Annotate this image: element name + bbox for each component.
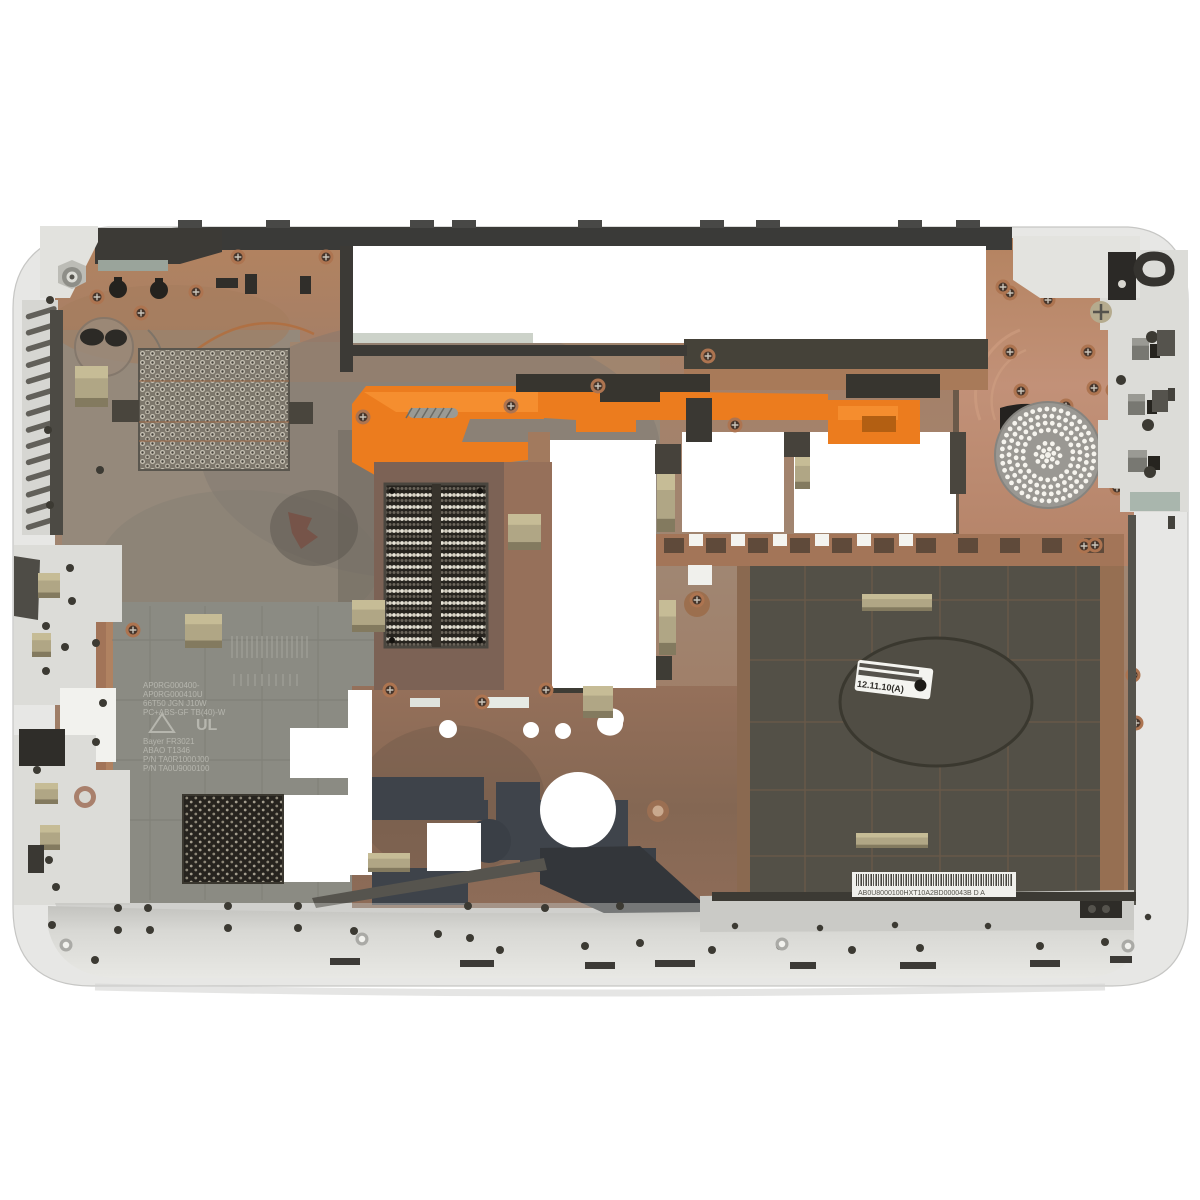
svg-text:AB0U8000100HXT10A2BD000043B D: AB0U8000100HXT10A2BD000043B D A — [858, 890, 985, 897]
svg-text:AP0RG000400-: AP0RG000400- — [143, 681, 200, 690]
svg-text:AP0RG000410U: AP0RG000410U — [143, 690, 203, 699]
svg-text:UL: UL — [196, 717, 218, 734]
svg-text:Bayer FR3021: Bayer FR3021 — [143, 737, 195, 746]
svg-text:PC+ABS-GF TB(40)-W: PC+ABS-GF TB(40)-W — [143, 708, 226, 717]
svg-text:ABAO T1346: ABAO T1346 — [143, 746, 191, 755]
svg-text:66T50 JGN J10W: 66T50 JGN J10W — [143, 699, 207, 708]
svg-text:P/N TA0R1000J00: P/N TA0R1000J00 — [143, 755, 210, 764]
svg-text:P/N TA0U9000100: P/N TA0U9000100 — [143, 764, 210, 773]
